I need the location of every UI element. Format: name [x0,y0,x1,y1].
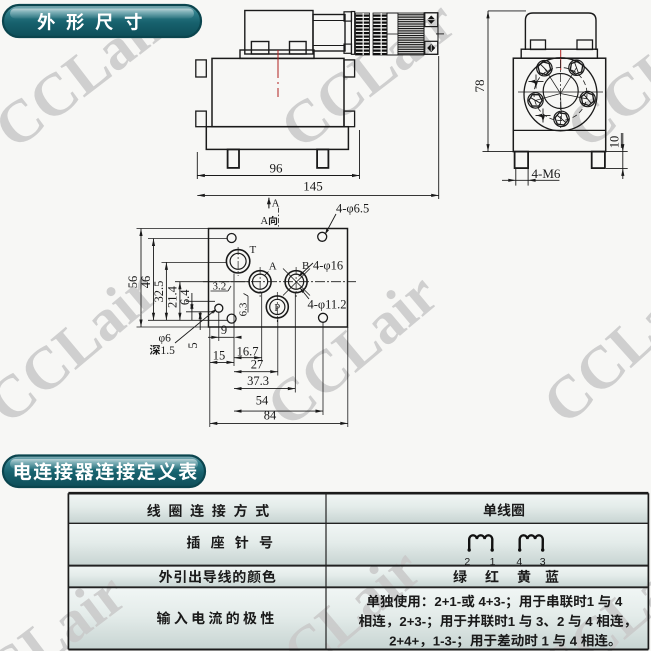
svg-text:2+3-: 2+3- [399,614,426,629]
svg-text:16.7: 16.7 [237,344,259,358]
svg-text:4: 4 [516,556,522,568]
svg-text:4: 4 [582,614,597,629]
svg-text:27: 27 [251,358,264,372]
svg-text:5: 5 [186,342,200,348]
svg-text:4-φ11.2: 4-φ11.2 [308,298,347,312]
svg-text:1: 1 [587,594,598,609]
svg-text:145: 145 [303,179,323,194]
svg-text:3: 3 [532,614,543,629]
svg-text:A: A [269,260,277,272]
svg-text:15: 15 [213,348,226,362]
svg-text:46: 46 [139,276,153,289]
svg-text:37.3: 37.3 [247,374,269,388]
svg-text:1-3-: 1-3- [433,633,456,648]
svg-text:φ6: φ6 [159,333,172,345]
svg-text:2+4+: 2+4+ [389,633,419,648]
svg-text:4: 4 [611,594,623,609]
svg-text:T: T [250,244,257,256]
svg-text:2+1-: 2+1- [434,594,461,609]
svg-text:2: 2 [464,556,470,568]
svg-text:2: 2 [557,614,568,629]
svg-text:1: 1 [508,614,519,629]
svg-text:32.5: 32.5 [152,281,166,303]
svg-text:4-M6: 4-M6 [532,166,561,181]
svg-text:78: 78 [472,80,487,93]
svg-text:96: 96 [270,161,284,176]
svg-text:6.4: 6.4 [178,289,192,305]
svg-text:1: 1 [490,556,496,568]
svg-text:4-φ6.5: 4-φ6.5 [336,202,369,216]
svg-text:3: 3 [540,556,546,568]
svg-text:56: 56 [126,276,140,289]
svg-text:54: 54 [256,394,269,408]
svg-text:4: 4 [566,633,581,648]
svg-text:4+3-: 4+3- [475,594,505,609]
svg-text:84: 84 [264,408,277,422]
svg-text:10: 10 [608,136,622,149]
svg-text:4-φ16: 4-φ16 [313,259,343,273]
svg-text:1.5: 1.5 [161,345,176,357]
svg-text:A: A [261,216,269,227]
svg-text:1: 1 [538,633,553,648]
svg-text:9: 9 [221,323,227,337]
